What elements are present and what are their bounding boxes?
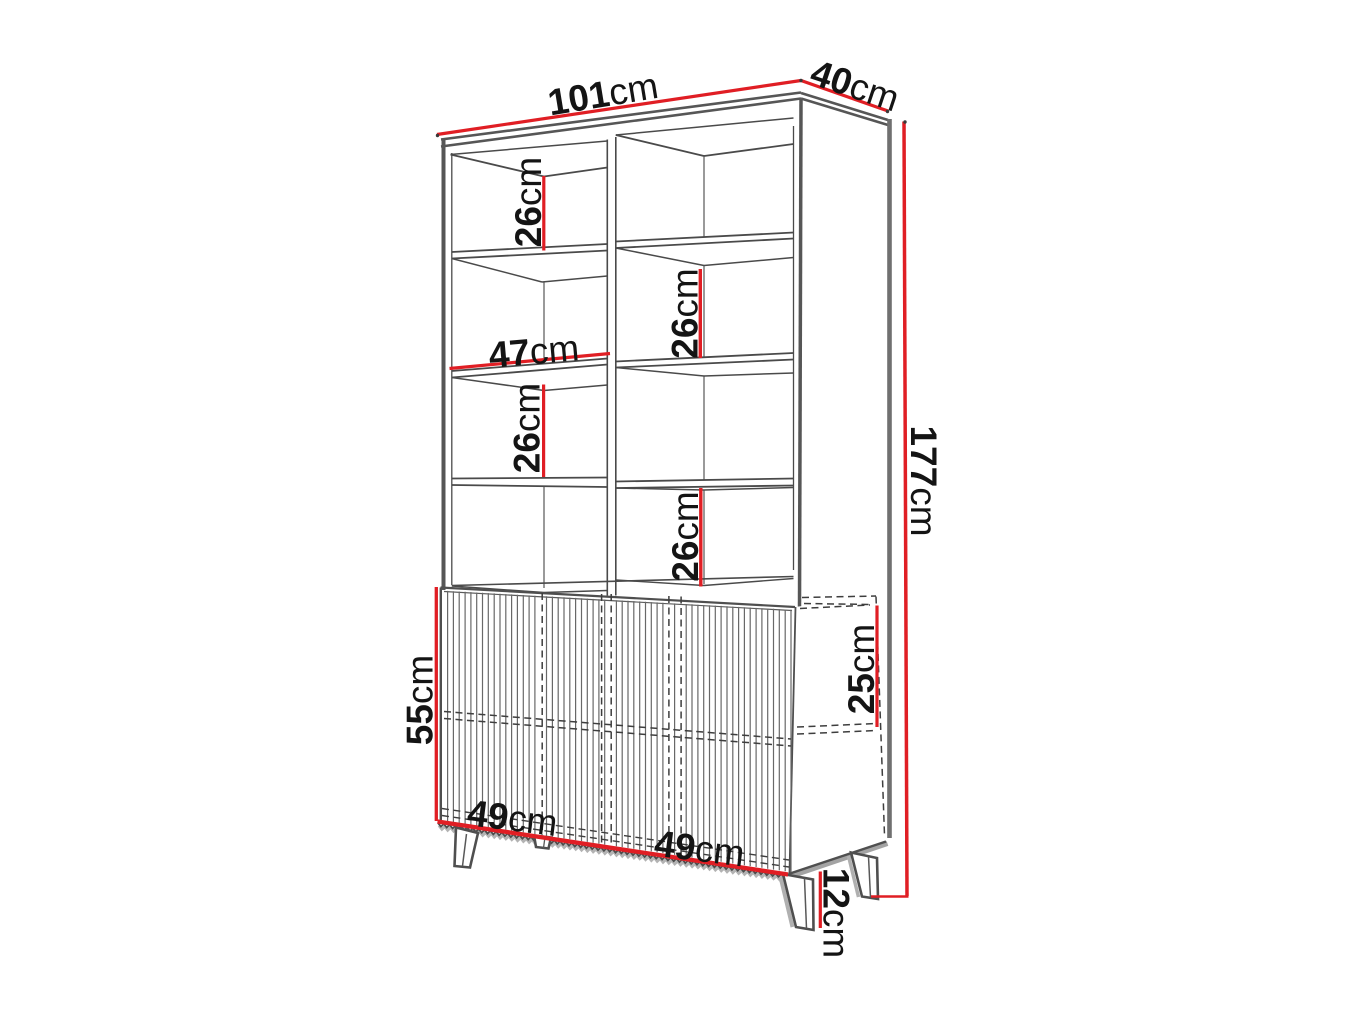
svg-text:26cm: 26cm <box>664 268 705 358</box>
svg-text:12cm: 12cm <box>815 868 856 958</box>
svg-text:25cm: 25cm <box>841 624 882 714</box>
svg-text:26cm: 26cm <box>508 157 549 247</box>
svg-text:47cm: 47cm <box>487 327 581 376</box>
svg-text:26cm: 26cm <box>665 491 706 581</box>
svg-text:55cm: 55cm <box>400 655 441 745</box>
svg-text:26cm: 26cm <box>506 383 547 473</box>
svg-text:177cm: 177cm <box>903 425 944 536</box>
